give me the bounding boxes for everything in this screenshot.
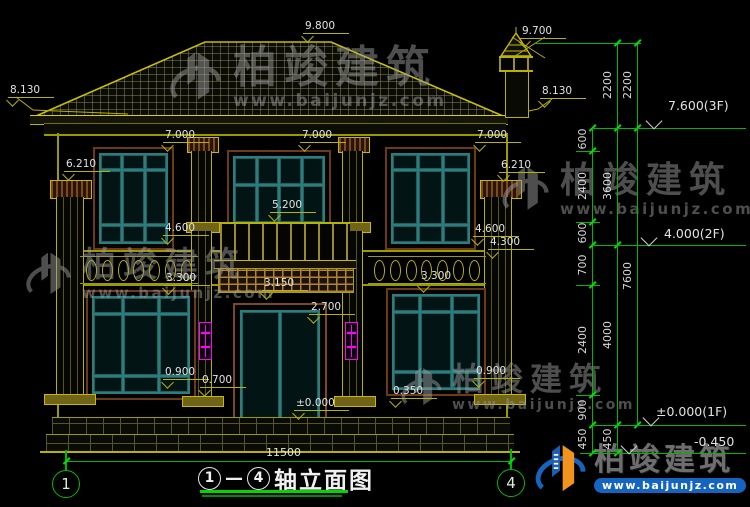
- dim-chain-value: 600: [576, 117, 590, 161]
- chimney-shaft: [505, 68, 529, 118]
- dim-chain-value: 2400: [576, 318, 590, 362]
- elevation-mark: 4.300: [488, 236, 534, 250]
- elevation-mark: 8.130: [8, 84, 54, 98]
- column-shaft-left: [191, 151, 212, 222]
- pilaster-shaft-left: [56, 197, 84, 397]
- level-value: -0.450: [694, 434, 734, 449]
- elevation-mark: 9.700: [520, 25, 566, 39]
- column-shaft-right: [342, 151, 363, 222]
- elevation-mark: ±0.000: [294, 397, 349, 411]
- level-value: 4.000(2F): [664, 226, 725, 241]
- axis-bubble-1: 1: [52, 470, 80, 498]
- title-underline-bright: [200, 490, 348, 493]
- dim-chain-value: 2400: [576, 164, 590, 208]
- level-line: [592, 245, 746, 246]
- elevation-mark: 0.700: [200, 374, 246, 388]
- level-line: [592, 128, 746, 129]
- dim-chain-value: 700: [576, 243, 590, 287]
- dim-chain-value: 3600: [601, 164, 615, 208]
- title-separator: —: [225, 468, 243, 489]
- elevation-mark: 8.130: [540, 85, 586, 99]
- elevation-mark: 7.000: [475, 129, 521, 143]
- pedestal-cap-right-corner: [474, 394, 526, 405]
- dim-chain-value: 2200: [601, 63, 615, 107]
- level-line: [592, 425, 746, 426]
- window-1f-right: [386, 288, 486, 396]
- window-2f-center: [227, 150, 331, 230]
- elevation-mark: 7.000: [300, 129, 346, 143]
- dim-chain-line: [637, 43, 638, 425]
- elevation-mark: 6.210: [64, 158, 110, 172]
- overall-dim-text: 11500: [266, 446, 301, 459]
- level-line: [580, 453, 746, 454]
- elevation-mark: 9.800: [303, 20, 349, 34]
- extension-line: [535, 43, 641, 44]
- pedestal-cap-left-corner: [44, 394, 96, 405]
- dim-chain-value: 450: [601, 417, 615, 461]
- cornice: [44, 123, 506, 136]
- dim-chain-line: [617, 43, 618, 453]
- wall-lamp-right: [345, 322, 358, 360]
- cad-elevation-drawing: 11500 1 4 1 — 4 轴立面图 柏竣建筑 www.baijunjz.c…: [0, 0, 750, 507]
- pedestal-cap-pier-left: [182, 396, 224, 407]
- level-value: 7.600(3F): [668, 98, 729, 113]
- elevation-mark: 7.000: [163, 129, 209, 143]
- dim-chain-value: 450: [576, 417, 590, 461]
- base-course-upper: [52, 417, 510, 435]
- dim-chain-value: 4000: [601, 313, 615, 357]
- window-2f-right: [385, 147, 476, 250]
- wall-lamp-left: [199, 322, 212, 360]
- axis-bubble-4: 4: [497, 469, 525, 497]
- title-axis-from: 1: [198, 467, 221, 490]
- elevation-mark: 5.200: [270, 199, 316, 213]
- dim-chain-value: 2200: [621, 63, 635, 107]
- window-1f-left: [86, 290, 196, 400]
- title-axis-to: 4: [247, 467, 270, 490]
- elevation-mark: 3.150: [262, 277, 308, 291]
- brand-logo-url: www.baijunjz.com: [594, 478, 746, 493]
- elevation-mark: 0.350: [391, 385, 437, 399]
- elevation-mark: 4.600: [163, 222, 209, 236]
- elevation-mark: 6.210: [499, 159, 545, 173]
- title-underline-dark: [202, 495, 342, 497]
- dim-chain-line: [592, 128, 593, 453]
- elevation-mark: 3.300: [419, 270, 465, 284]
- elevation-mark: 0.900: [474, 365, 520, 379]
- balcony-railing: [220, 222, 350, 264]
- elevation-mark: 2.700: [309, 301, 355, 315]
- dim-chain-value: 7600: [621, 254, 635, 298]
- elevation-mark: 3.300: [164, 272, 210, 286]
- level-value: ±0.000(1F): [656, 404, 727, 419]
- chimney-ring: [499, 56, 533, 72]
- elevation-mark: 4.600: [473, 223, 519, 237]
